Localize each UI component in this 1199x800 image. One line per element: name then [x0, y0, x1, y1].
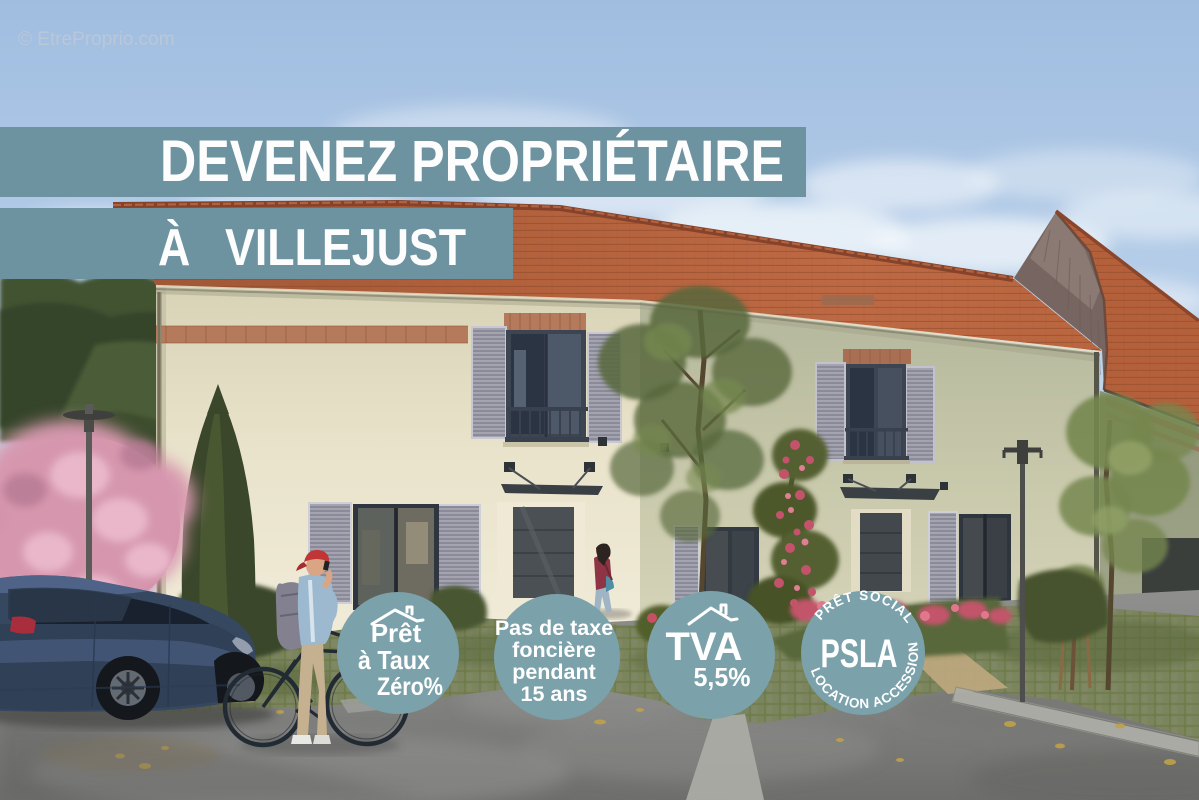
- svg-text:15 ans: 15 ans: [521, 682, 588, 706]
- svg-text:© EtreProprio.com: © EtreProprio.com: [18, 29, 175, 50]
- svg-text:À VILLEJUST: À VILLEJUST: [158, 219, 466, 277]
- svg-text:Prêt: Prêt: [371, 618, 422, 648]
- svg-text:DEVENEZ PROPRIÉTAIRE: DEVENEZ PROPRIÉTAIRE: [160, 129, 784, 194]
- svg-text:Pas de taxe: Pas de taxe: [495, 616, 613, 640]
- svg-text:à Taux: à Taux: [358, 645, 430, 675]
- svg-text:PSLA: PSLA: [821, 632, 898, 676]
- svg-text:foncière: foncière: [512, 638, 596, 662]
- svg-text:Zéro%: Zéro%: [377, 673, 443, 701]
- svg-text:pendant: pendant: [512, 660, 596, 684]
- svg-text:5,5%: 5,5%: [694, 662, 751, 692]
